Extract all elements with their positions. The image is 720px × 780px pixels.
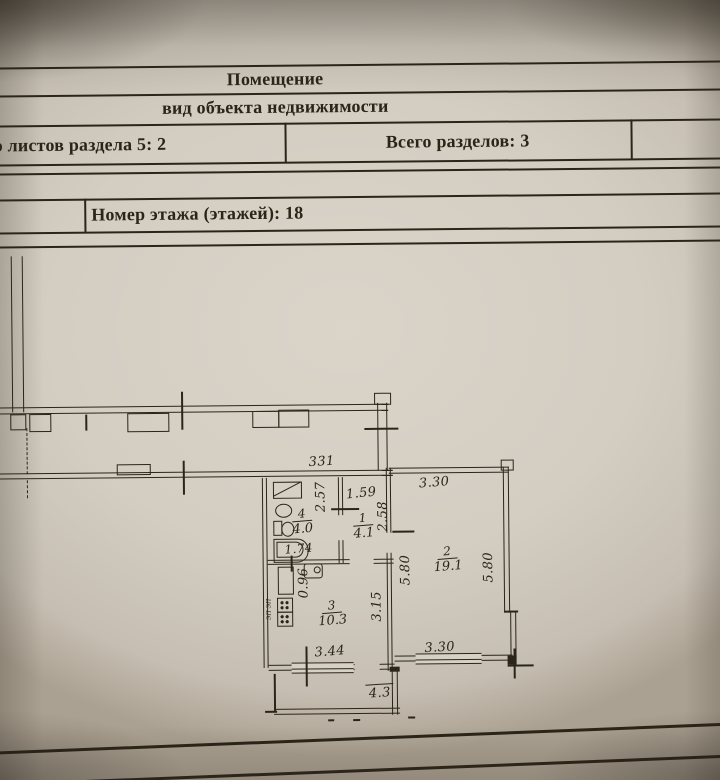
wall bbox=[503, 467, 510, 613]
balcony-wall bbox=[274, 674, 276, 712]
dimension-tick bbox=[181, 392, 183, 430]
dimension-tick bbox=[508, 664, 534, 666]
dim-hall-width: 1.59 bbox=[345, 485, 377, 503]
kitchen-counter-icon bbox=[278, 567, 294, 595]
room-2-label: 2 19.1 bbox=[427, 543, 469, 576]
room-3-label: 3 10.3 bbox=[311, 597, 353, 630]
dim-tub-length: 1.74 bbox=[284, 540, 313, 556]
wall bbox=[262, 478, 269, 668]
wall-niche bbox=[10, 414, 26, 430]
sheets-cell: о листов раздела 5: 2 bbox=[0, 134, 166, 157]
floor-number-cell: Номер этажа (этажей): 18 bbox=[91, 203, 303, 226]
table-rule bbox=[0, 118, 720, 127]
balcony-wall bbox=[274, 708, 400, 715]
washing-machine-lid bbox=[273, 482, 300, 497]
dimension-tick bbox=[364, 428, 398, 430]
wall bbox=[0, 470, 393, 480]
page-title: Помещение bbox=[0, 66, 553, 92]
scanned-document-photo: Помещение вид объекта недвижимости о лис… bbox=[0, 0, 720, 780]
wall bbox=[377, 403, 388, 471]
ground-mark bbox=[408, 716, 415, 718]
document-page: Помещение вид объекта недвижимости о лис… bbox=[0, 0, 720, 780]
window bbox=[292, 662, 354, 674]
table-rule bbox=[0, 225, 720, 234]
room-area: 4.1 bbox=[349, 525, 378, 542]
wall-niche bbox=[278, 409, 309, 427]
floor-plan: ЭП ЭП 331 3.30 2.57 1.59 2.58 1.74 0.96 … bbox=[0, 0, 716, 3]
table-rule bbox=[0, 754, 720, 780]
wall bbox=[0, 404, 388, 415]
dim-counter: 0.96 bbox=[296, 565, 312, 601]
wall bbox=[387, 553, 393, 671]
dim-top-width: 331 bbox=[308, 454, 335, 471]
kitchen-sink-drain bbox=[314, 566, 321, 573]
balcony-area-label: 4.3 bbox=[365, 685, 394, 702]
room-1-label: 1 4.1 bbox=[348, 510, 378, 542]
cell-border bbox=[630, 119, 632, 159]
dim-room2-top: 3.30 bbox=[418, 474, 450, 491]
room-area: 4.0 bbox=[288, 520, 317, 537]
room-area: 19.1 bbox=[428, 558, 469, 576]
washing-machine-icon bbox=[273, 482, 302, 499]
table-rule bbox=[0, 157, 720, 166]
wall-niche bbox=[252, 411, 279, 428]
dim-hall-height: 2.58 bbox=[375, 498, 391, 534]
dim-kitchen-bottom: 3.44 bbox=[314, 643, 346, 660]
room-4-label: 4 4.0 bbox=[287, 505, 317, 537]
room-area: 10.3 bbox=[312, 612, 353, 630]
wall-niche bbox=[117, 464, 151, 475]
table-rule bbox=[0, 166, 720, 175]
stove-label: ЭП ЭП bbox=[265, 594, 273, 624]
page-subtitle: вид объекта недвижимости bbox=[0, 94, 553, 120]
ground-mark bbox=[353, 719, 360, 721]
dimension-tick bbox=[392, 530, 414, 532]
wall bbox=[374, 559, 394, 564]
total-sections-cell: Всего разделов: 3 bbox=[285, 129, 631, 153]
dim-bath-height: 2.57 bbox=[313, 479, 329, 515]
balcony-area: 4.3 bbox=[365, 683, 394, 702]
stove-icon bbox=[277, 598, 293, 613]
wall-niche bbox=[29, 414, 51, 432]
dim-room2-left-height: 5.80 bbox=[398, 552, 414, 588]
wall-cap bbox=[390, 667, 400, 672]
ground-mark bbox=[328, 719, 334, 721]
table-rule bbox=[0, 239, 720, 248]
dim-kitchen-right: 3.15 bbox=[369, 588, 385, 624]
wall bbox=[11, 256, 24, 412]
dimension-tick bbox=[305, 647, 307, 687]
dim-room2-bottom: 3.30 bbox=[424, 639, 455, 656]
wall-niche bbox=[127, 413, 169, 432]
table-rule bbox=[0, 722, 720, 754]
wall-cap bbox=[265, 711, 277, 713]
cell-border bbox=[84, 199, 86, 233]
dim-room2-right-height: 5.80 bbox=[481, 549, 497, 585]
dimension-tick bbox=[85, 415, 87, 431]
dimension-tick bbox=[331, 508, 359, 510]
table-rule bbox=[0, 192, 720, 201]
dashed-wall bbox=[27, 480, 28, 498]
dimension-tick bbox=[183, 461, 185, 495]
dashed-wall bbox=[26, 428, 27, 474]
wall bbox=[389, 467, 509, 474]
stove-icon bbox=[277, 612, 293, 627]
